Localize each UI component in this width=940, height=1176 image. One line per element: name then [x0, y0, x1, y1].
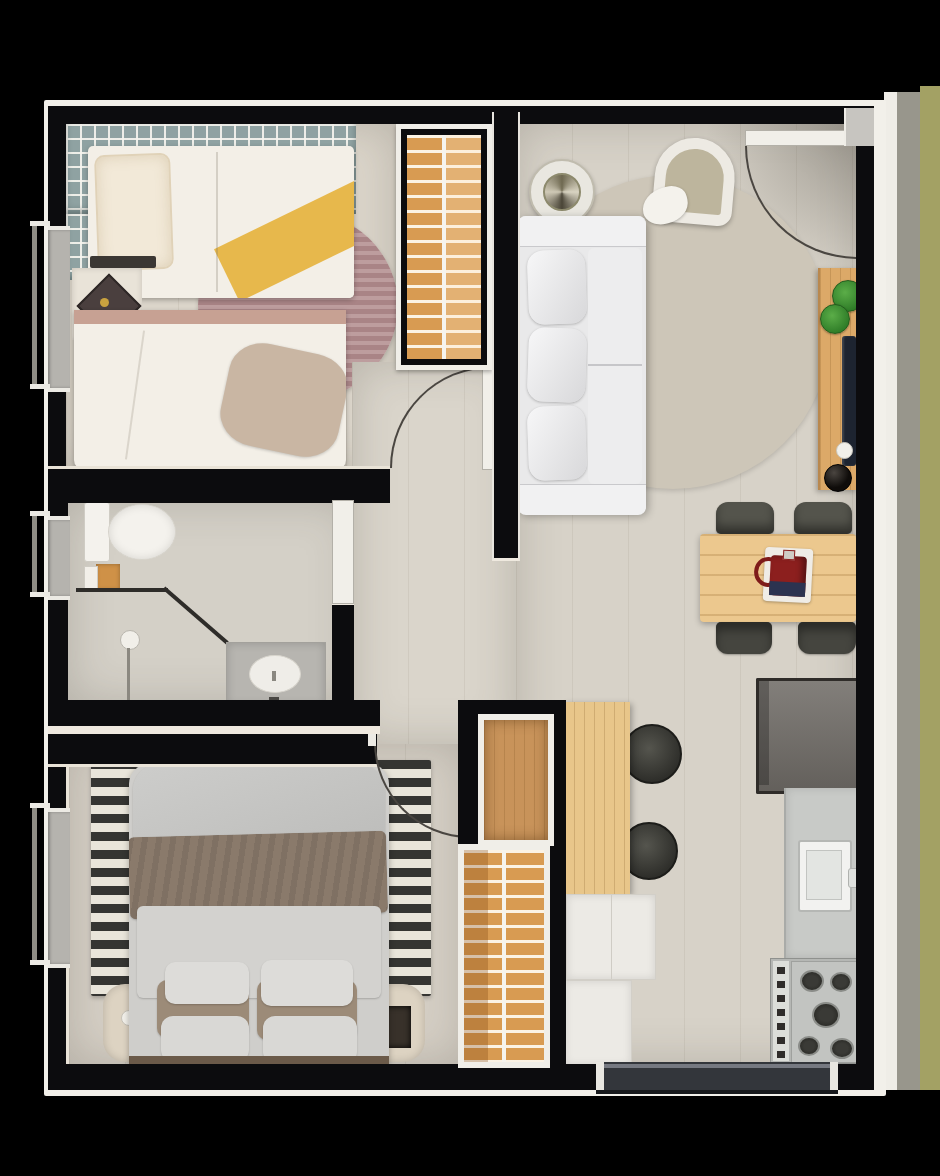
bathroom-bottom-wall: [48, 700, 380, 726]
floor-plan: [0, 0, 940, 1176]
dining-chair-2: [794, 502, 852, 534]
burner-2: [830, 972, 852, 992]
sink-basin: [806, 850, 842, 900]
island-cabinet-2: [564, 980, 632, 1064]
stove-knob: [777, 967, 785, 974]
sill-tick: [30, 960, 50, 965]
bathroom-cabinet-orange: [96, 564, 120, 590]
door-track-highlight: [596, 1064, 838, 1068]
stove-knob: [777, 995, 785, 1002]
sofa-back-cushion-2: [527, 327, 588, 403]
wardrobe-2-shelves: [464, 850, 544, 1062]
stove-knob: [777, 1051, 785, 1058]
shower-knob-stem: [127, 648, 130, 700]
sofa-seat-seam: [588, 364, 642, 366]
living-floor: [516, 124, 856, 1064]
pillow-white-left-1: [165, 962, 249, 1004]
armchair: [646, 132, 744, 239]
sill-tick: [30, 803, 50, 808]
wardrobe-1-shelves: [407, 135, 481, 359]
sill-tick: [30, 384, 50, 389]
dining-chair-1: [716, 502, 774, 534]
bathroom-floor: [68, 500, 354, 704]
sofa-seat: [588, 248, 642, 484]
moka-pot-mat: [763, 547, 814, 603]
bedroom-1-door-arc: [390, 366, 492, 468]
black-bowl: [824, 464, 852, 492]
wall-seam: [48, 726, 380, 734]
kitchen-counter: [784, 788, 856, 958]
spiral-decor: [543, 173, 581, 211]
desk-plant-2: [820, 304, 850, 334]
sill-bathroom: [32, 516, 37, 592]
burner-3: [812, 1002, 840, 1028]
sill-bedroom-2: [32, 808, 37, 960]
headboard-bar: [129, 1056, 389, 1064]
moka-pot-base: [769, 581, 806, 597]
sofa-armrest-bottom: [518, 484, 646, 515]
sill-tick: [30, 592, 50, 597]
bed-pillow: [94, 153, 174, 272]
door-track-shadow: [596, 1090, 838, 1094]
duvet-fold-line: [216, 152, 218, 292]
window-bedroom-1: [48, 226, 70, 392]
stove-knob: [777, 981, 785, 988]
bedroom-1-bottom-wall: [48, 466, 390, 503]
kitchen-island: [564, 702, 630, 894]
wardrobe-1-frame: [396, 124, 492, 370]
bathroom-door-leaf: [332, 500, 354, 604]
burner-1: [800, 970, 824, 992]
shower-screen-b: [163, 586, 229, 644]
stove-knob-strip: [773, 961, 789, 1061]
stove-knob: [777, 1037, 785, 1044]
central-wall: [492, 112, 520, 561]
fridge-seam: [759, 681, 769, 785]
stove-panel: [791, 961, 856, 1063]
bed-top-duvet: [133, 764, 385, 842]
dining-chair-3: [716, 622, 772, 654]
guest-bed-headboard: [74, 310, 346, 324]
wardrobe-2-rail: [502, 850, 506, 1062]
guest-bed-fold: [125, 330, 145, 459]
exterior-olive-strip: [920, 86, 940, 1090]
entry-door-niche: [844, 108, 874, 146]
double-bed: [129, 764, 389, 1064]
wardrobe-2-base: [458, 700, 566, 1068]
under-bed-shadow: [90, 256, 156, 268]
wardrobe-2-frame-b: [458, 844, 550, 1068]
sill-tick: [30, 511, 50, 516]
sofa-armrest-top: [518, 216, 646, 247]
moka-pot-body: [769, 555, 807, 597]
entry-door-leaf: [745, 130, 856, 146]
bathroom-cabinet-white: [84, 566, 98, 590]
balcony-sliding-door: [596, 1062, 838, 1094]
wardrobe-2-wood-a: [484, 720, 548, 840]
exterior-gray-strip: [897, 92, 920, 1090]
burner-5: [830, 1038, 854, 1059]
sofa-back-cushion-1: [527, 249, 588, 325]
wardrobe-1-highlight: [446, 135, 481, 359]
mouse: [836, 442, 853, 459]
toilet-bowl: [108, 504, 176, 560]
shower-tray: [226, 642, 326, 704]
bedroom-2-door-frame-1: [368, 734, 376, 746]
gold-accent: [100, 298, 109, 307]
moka-pot-lid: [783, 550, 796, 561]
faucet: [848, 868, 856, 888]
stove-knob: [777, 1009, 785, 1016]
gas-stove: [770, 958, 856, 1064]
stove-knob: [777, 1023, 785, 1030]
beige-throw: [214, 337, 346, 464]
dining-chair-4: [798, 622, 856, 654]
drain-dot: [272, 671, 276, 681]
shower-screen-a: [76, 588, 168, 592]
sink: [798, 840, 852, 912]
island-cabinet-1: [566, 894, 656, 980]
cabinet-seam: [611, 895, 612, 979]
wardrobe-2-frame-a: [478, 714, 554, 846]
sill-tick: [30, 221, 50, 226]
sill-bedroom-1: [32, 226, 37, 384]
bedroom-2-top-wall: [48, 734, 377, 767]
window-bathroom: [48, 516, 70, 600]
shower-knob: [120, 630, 140, 650]
sofa: [518, 216, 646, 514]
burner-4: [798, 1036, 820, 1056]
guest-bed: [74, 310, 346, 470]
bar-stool-1: [622, 724, 682, 784]
window-bedroom-2: [48, 808, 70, 968]
pillow-white-right-1: [261, 960, 353, 1006]
refrigerator: [756, 678, 856, 794]
toilet-tank: [84, 502, 110, 562]
sofa-back-cushion-3: [527, 405, 588, 481]
bedroom-1-floor: [66, 124, 396, 470]
wardrobe-2-shade: [464, 850, 488, 1062]
wardrobe-1-inner: [401, 129, 487, 365]
